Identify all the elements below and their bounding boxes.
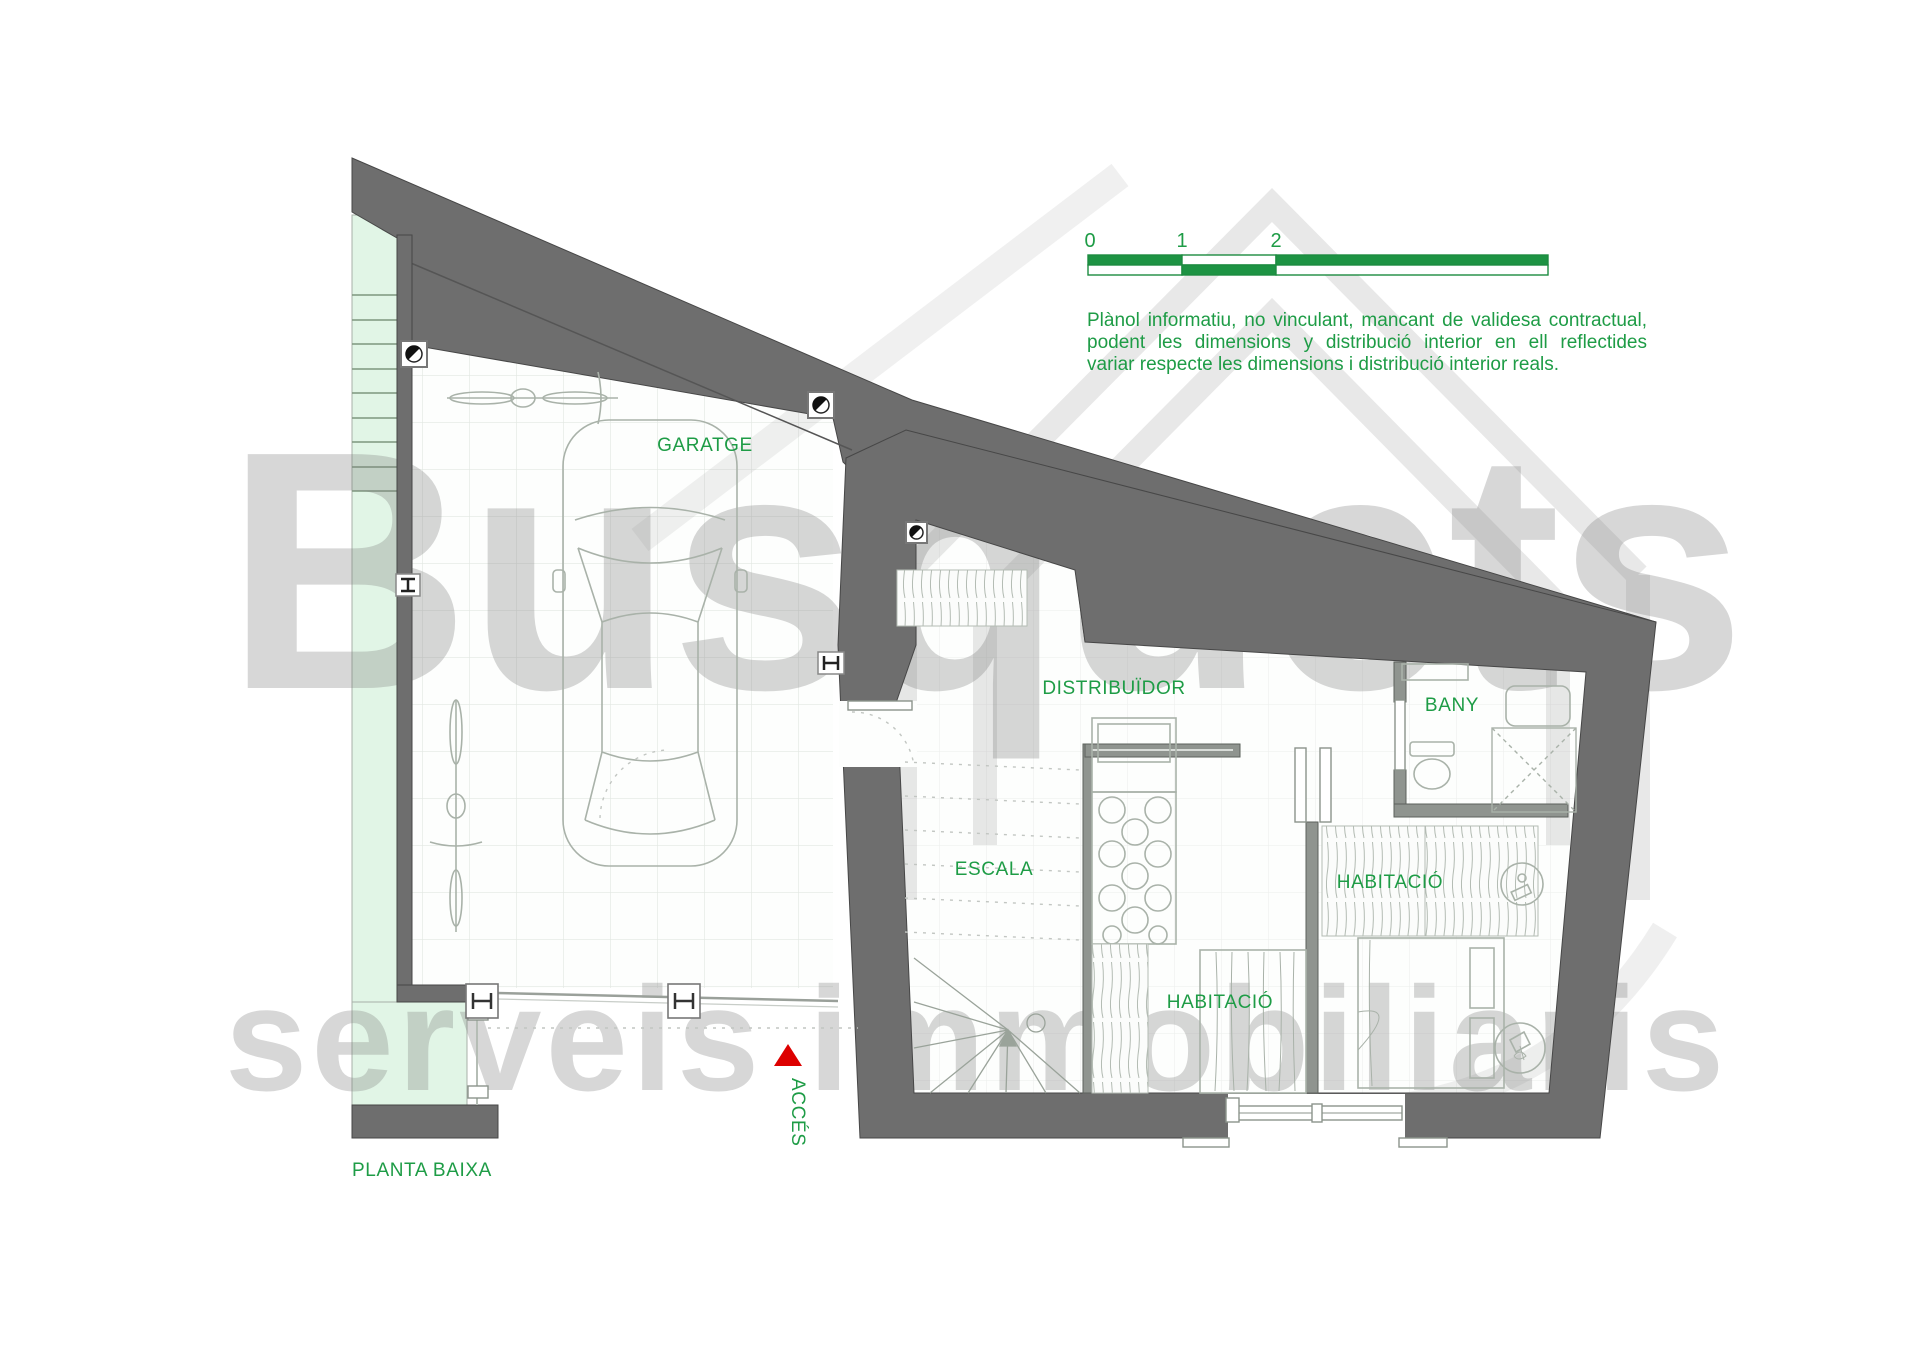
- scale-tick-1: 1: [1176, 230, 1187, 252]
- ibeam-marker-icon: [396, 574, 420, 596]
- scale-tick-0: 0: [1084, 230, 1095, 252]
- column-marker-icon: [668, 984, 700, 1018]
- disclaimer-line-3: variar respecte les dimensions i distrib…: [1087, 354, 1647, 376]
- disclaimer-line-1: Plànol informatiu, no vinculant, mancant…: [1087, 310, 1647, 332]
- wardrobe-hatch-left: [1092, 944, 1148, 1093]
- ibeam-marker-icon: [818, 652, 844, 674]
- double-door-leaf-right: [1320, 748, 1331, 822]
- room-label-habitacio-bottom: HABITACIÓ: [1167, 991, 1273, 1013]
- bany-left-wall-stub2: [1394, 770, 1406, 806]
- window-sill-right: [1399, 1138, 1447, 1147]
- partition-escala: [1083, 744, 1092, 1093]
- corner-marker-icon: [906, 522, 927, 543]
- gate-hinge-bottom: [468, 1086, 488, 1098]
- room-label-garatge: GARATGE: [657, 435, 753, 456]
- column-marker-icon: [466, 984, 498, 1018]
- bany-door-leaf: [1395, 700, 1405, 770]
- corner-marker-icon: [401, 341, 427, 367]
- street-bottom-wall: [352, 1105, 498, 1138]
- floor-plan-svg: Busquets serveis immobiliaris: [0, 0, 1920, 1357]
- window-sill-left: [1183, 1138, 1229, 1147]
- access-label: ACCÉS: [787, 1078, 808, 1146]
- scale-tick-2: 2: [1270, 230, 1281, 252]
- window-mullion: [1312, 1104, 1322, 1122]
- bany-bottom-wall: [1394, 804, 1568, 817]
- floor-title: PLANTA BAIXA: [352, 1160, 492, 1181]
- double-door-leaf-left: [1295, 748, 1306, 822]
- scale-bar-segments: [1088, 255, 1548, 275]
- room-label-escala: ESCALA: [955, 859, 1034, 880]
- garage-bottom-wall: [397, 985, 468, 1002]
- bany-left-wall-stub: [1394, 662, 1406, 702]
- partition-habitacions: [1306, 822, 1318, 1093]
- garage-door-opening: [839, 701, 917, 767]
- disclaimer-note: Plànol informatiu, no vinculant, mancant…: [1087, 310, 1647, 376]
- floor-plan-page: Busquets serveis immobiliaris: [0, 0, 1920, 1357]
- window-jamb-left: [1226, 1098, 1239, 1122]
- garage-interior-door-leaf: [848, 701, 912, 710]
- wardrobe-hatch-top: [897, 570, 1027, 626]
- room-label-habitacio-right: HABITACIÓ: [1337, 871, 1443, 893]
- room-label-bany: BANY: [1425, 695, 1479, 716]
- room-label-distribuidor: DISTRIBUÏDOR: [1042, 678, 1185, 699]
- disclaimer-line-2: podent les dimensions y distribució inte…: [1087, 332, 1647, 354]
- corner-marker-icon: [808, 392, 834, 418]
